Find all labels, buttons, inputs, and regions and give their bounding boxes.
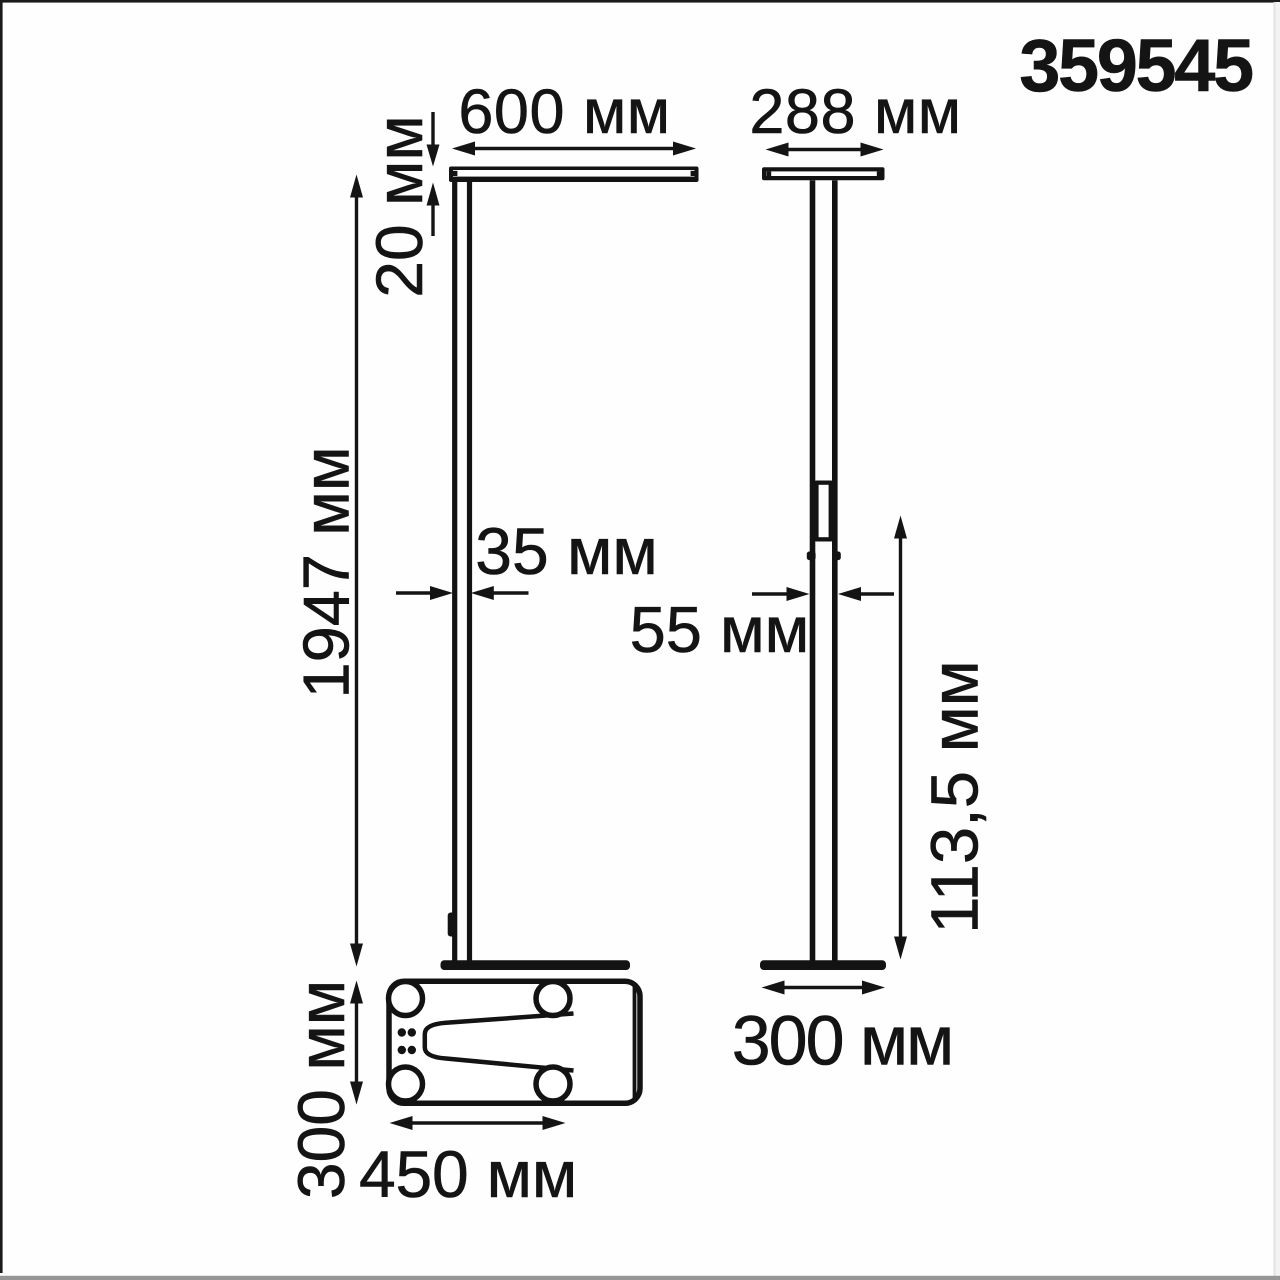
svg-text:20 мм: 20 мм — [362, 115, 436, 298]
svg-text:300 мм: 300 мм — [732, 1002, 953, 1080]
svg-text:288 мм: 288 мм — [749, 77, 961, 147]
svg-text:300 мм: 300 мм — [284, 980, 358, 1199]
svg-text:1947 мм: 1947 мм — [290, 446, 363, 698]
svg-text:450 мм: 450 мм — [359, 1137, 577, 1211]
svg-text:600 мм: 600 мм — [458, 77, 670, 147]
svg-text:113,5 мм: 113,5 мм — [918, 660, 993, 933]
svg-text:35 мм: 35 мм — [475, 514, 658, 588]
svg-text:55 мм: 55 мм — [630, 593, 810, 666]
svg-text:359545: 359545 — [1019, 24, 1253, 107]
